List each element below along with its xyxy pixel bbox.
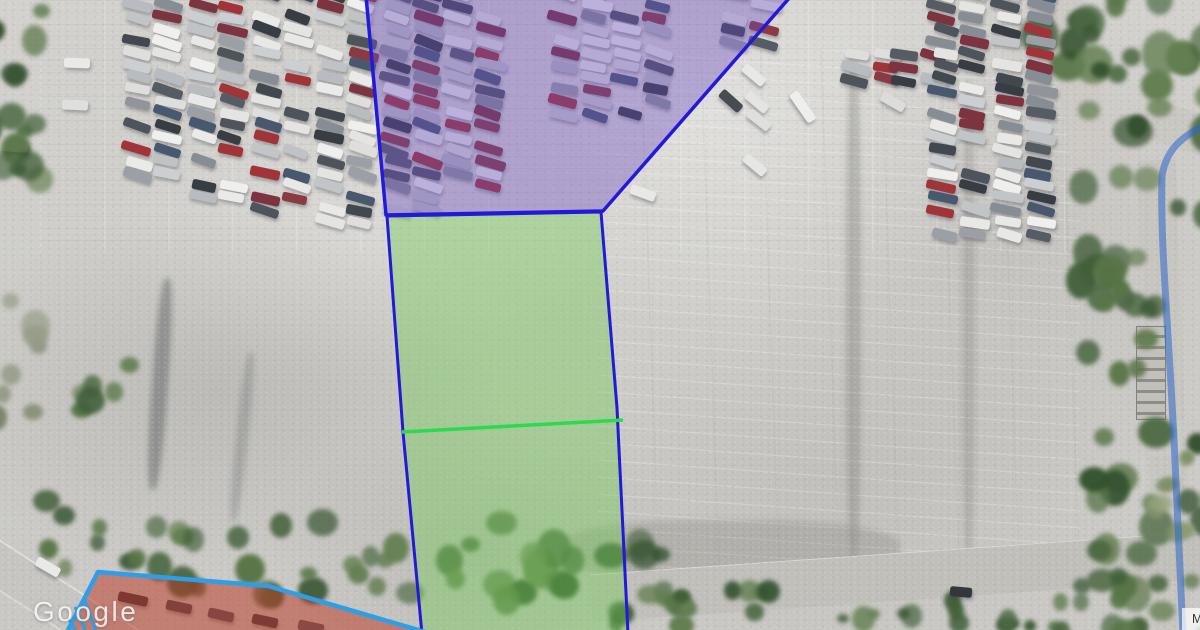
attribution-bar: Map data ©2022 Imagery ©2022 , CAPCOG, M…	[1182, 608, 1200, 630]
google-logo: Google	[33, 598, 138, 626]
attribution-text: Map data ©2022 Imagery ©2022 , CAPCOG, M…	[1192, 612, 1200, 626]
east-boundary-line[interactable]	[1162, 126, 1200, 630]
north-parcel-overlay[interactable]	[366, 0, 791, 215]
map-canvas[interactable]: Google Map data ©2022 Imagery ©2022 , CA…	[0, 0, 1200, 630]
parcel-overlays	[0, 0, 1200, 630]
